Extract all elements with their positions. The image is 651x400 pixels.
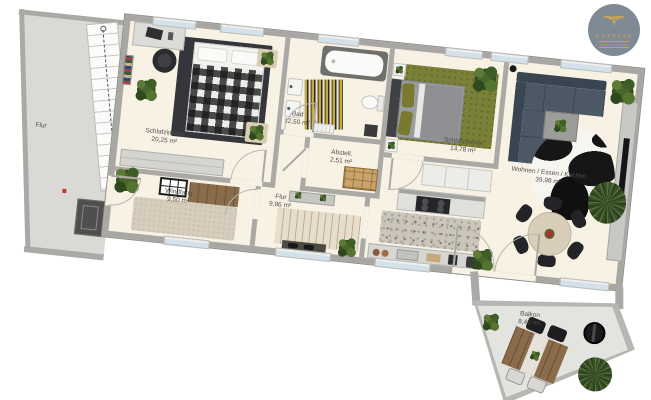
storage-boxes — [342, 166, 378, 191]
room-label-stair-hall: Flur — [35, 122, 47, 132]
blanket — [420, 84, 463, 142]
room-label-abstellraum: Abstell. 2,51 m² — [329, 149, 353, 168]
desk-item — [168, 32, 174, 40]
doormat-inner — [80, 205, 98, 231]
room-label-windfang: Windfang 9,50 m² — [164, 187, 193, 207]
cooktop — [415, 196, 450, 214]
logo-brand-text: KAPVEST — [595, 33, 633, 40]
laptop — [145, 27, 163, 41]
fruit-bowl — [372, 249, 380, 257]
fruit-bowl — [381, 249, 389, 257]
eagle-icon — [601, 12, 627, 32]
shoes — [288, 243, 298, 249]
pillow — [197, 46, 228, 63]
sink — [287, 78, 304, 96]
toilet — [360, 94, 385, 112]
room-label-flur: Flur 9,86 m² — [269, 192, 293, 211]
office-chair-seat — [157, 53, 172, 68]
bed-double — [386, 79, 466, 144]
room-name: Flur — [35, 122, 47, 132]
logo-tagline-text: REAL ESTATE — [599, 41, 629, 48]
dresser-line — [121, 157, 225, 169]
stair-start-circle — [100, 26, 107, 33]
faucet — [289, 85, 292, 88]
exit-marker — [62, 189, 66, 193]
room-label-balkon: Balkon 8,40 m² — [518, 310, 542, 329]
doormat — [74, 198, 106, 237]
floor-plan: Flur — [0, 0, 651, 400]
cutting-board — [426, 253, 441, 262]
pillow — [402, 83, 415, 107]
kapvest-logo: KAPVEST REAL ESTATE — [588, 4, 640, 56]
shoes — [304, 244, 314, 250]
bathtub-basin — [324, 50, 384, 78]
grill-handle — [591, 324, 596, 342]
centerpiece-bowl — [544, 228, 555, 239]
floor-plan-page: Flur — [0, 0, 651, 400]
bath-stool — [364, 124, 378, 137]
